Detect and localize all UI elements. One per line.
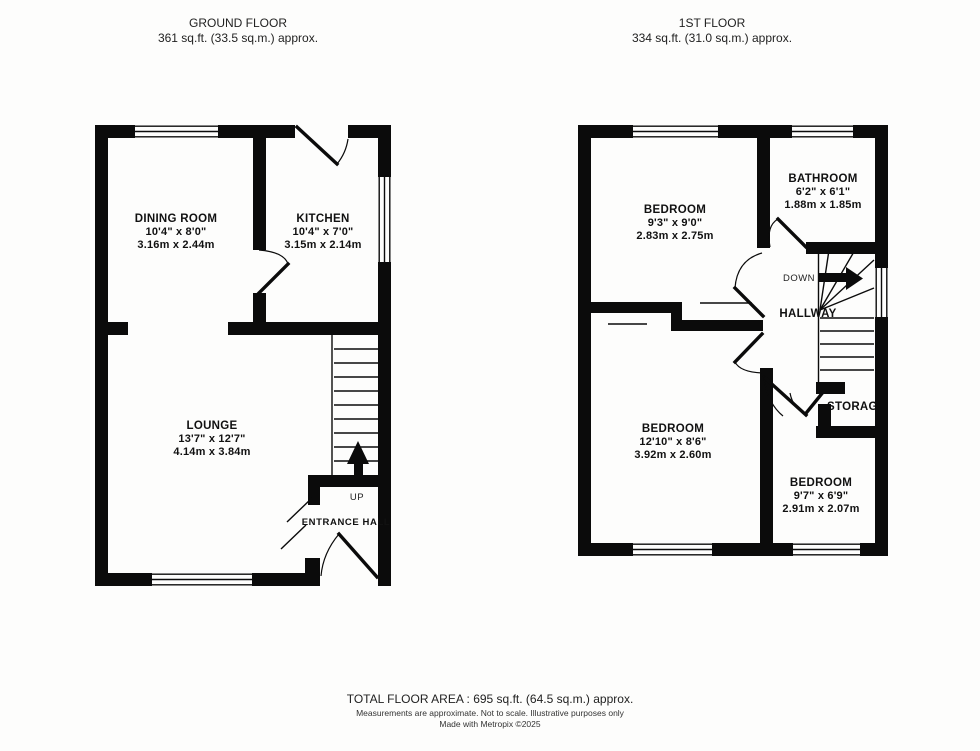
window-lounge-rear xyxy=(152,573,252,586)
bedroom-small-label: BEDROOM xyxy=(790,477,852,489)
dining-room-dims-imperial: 10'4" x 8'0" xyxy=(146,226,207,238)
floorplan-page: GROUND FLOOR 361 sq.ft. (33.5 sq.m.) app… xyxy=(0,0,980,751)
window-bathroom-front xyxy=(792,125,853,138)
credit-text: Made with Metropix ©2025 xyxy=(0,719,980,730)
bedroom-small-dims-metric: 2.91m x 2.07m xyxy=(782,503,859,515)
bedroom-rear-dims-metric: 3.92m x 2.60m xyxy=(634,449,711,461)
kitchen-dims-metric: 3.15m x 2.14m xyxy=(284,239,361,251)
kitchen-back-door xyxy=(295,125,348,164)
bedroom-front-door xyxy=(735,253,763,316)
kitchen-dims-imperial: 10'4" x 7'0" xyxy=(293,226,354,238)
front-door xyxy=(320,534,378,586)
window-dining-front xyxy=(135,125,218,138)
lounge-dims-imperial: 13'7" x 12'7" xyxy=(178,433,245,445)
window-kitchen-side xyxy=(378,177,391,262)
bedroom-front-label: BEDROOM xyxy=(644,204,706,216)
disclaimer-text: Measurements are approximate. Not to sca… xyxy=(0,708,980,719)
total-floor-area: TOTAL FLOOR AREA : 695 sq.ft. (64.5 sq.m… xyxy=(0,692,980,706)
bathroom-dims-imperial: 6'2" x 6'1" xyxy=(796,186,851,198)
down-label: DOWN xyxy=(783,273,815,284)
first-floor-plan: STORAGE xyxy=(578,125,888,556)
kitchen-inner-door xyxy=(259,250,288,293)
footer: TOTAL FLOOR AREA : 695 sq.ft. (64.5 sq.m… xyxy=(0,692,980,730)
down-arrow-icon xyxy=(818,267,863,290)
bedroom-rear-dims-imperial: 12'10" x 8'6" xyxy=(639,436,706,448)
window-bedroom-rear xyxy=(633,543,712,556)
ground-floor-stairs xyxy=(332,335,378,482)
bedroom-front-dims-imperial: 9'3" x 9'0" xyxy=(648,217,703,229)
bathroom-door xyxy=(769,219,806,247)
window-bedroom-front xyxy=(633,125,718,138)
window-bedroom-small-rear xyxy=(793,543,860,556)
floorplan-drawing: DINING ROOM 10'4" x 8'0" 3.16m x 2.44m K… xyxy=(0,0,980,751)
window-stairs-side xyxy=(875,268,888,317)
up-label: UP xyxy=(350,492,364,503)
ground-floor-plan: DINING ROOM 10'4" x 8'0" 3.16m x 2.44m K… xyxy=(95,125,391,586)
dining-room-label: DINING ROOM xyxy=(135,213,218,225)
kitchen-label: KITCHEN xyxy=(296,213,349,225)
bedroom-rear-door xyxy=(735,334,762,373)
hallway-label: HALLWAY xyxy=(779,308,836,320)
bedroom-rear-label: BEDROOM xyxy=(642,423,704,435)
bathroom-label: BATHROOM xyxy=(788,173,857,185)
bedroom-small-dims-imperial: 9'7" x 6'9" xyxy=(794,490,849,502)
lounge-dims-metric: 4.14m x 3.84m xyxy=(173,446,250,458)
dining-room-dims-metric: 3.16m x 2.44m xyxy=(137,239,214,251)
bathroom-dims-metric: 1.88m x 1.85m xyxy=(784,199,861,211)
lounge-label: LOUNGE xyxy=(187,420,238,432)
bedroom-front-dims-metric: 2.83m x 2.75m xyxy=(636,230,713,242)
entrance-hall-label: ENTRANCE HALL xyxy=(302,517,391,528)
